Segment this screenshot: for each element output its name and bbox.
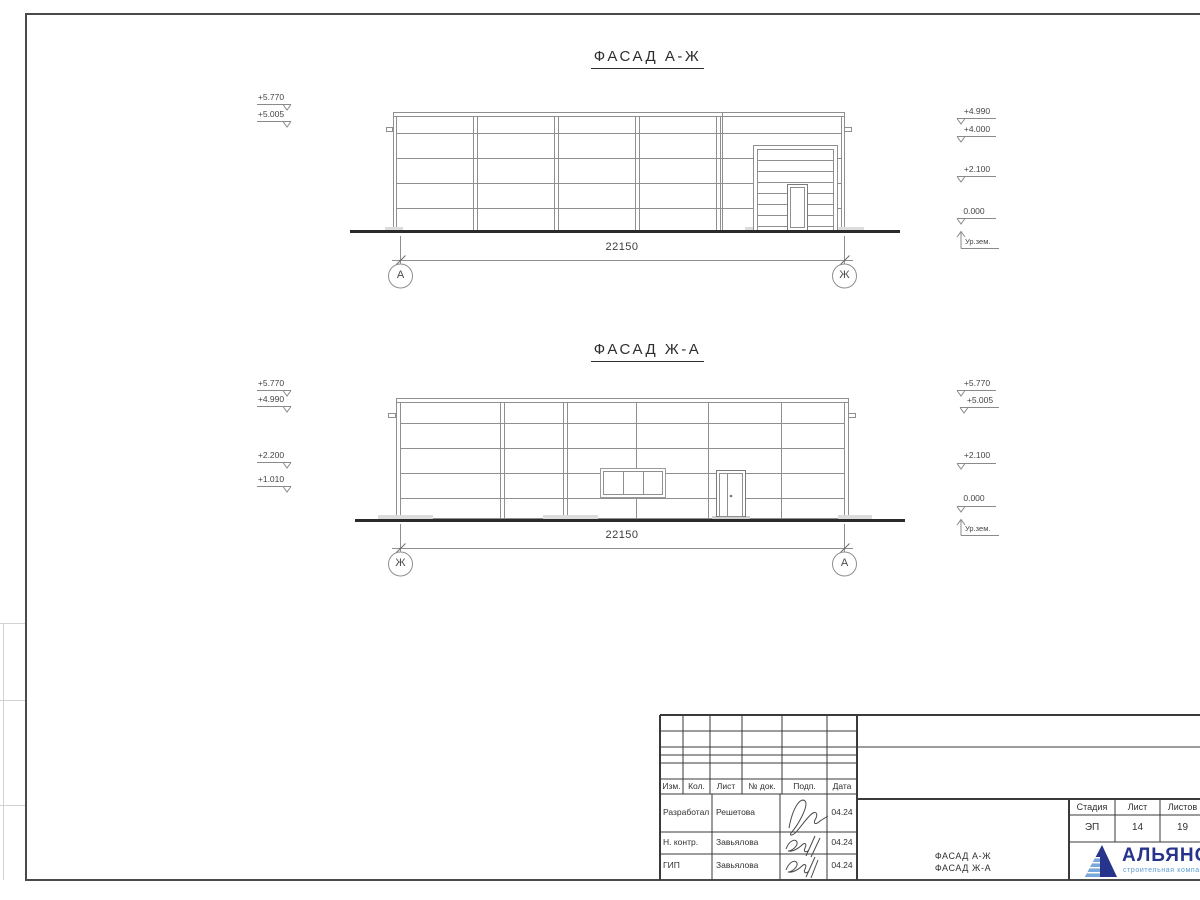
axis-letter: А xyxy=(832,557,857,570)
stage-value: ЭП xyxy=(1069,822,1115,834)
facade-2-title: ФАСАД Ж-А xyxy=(540,341,755,358)
elevation-label: 0.000 xyxy=(956,207,992,217)
sheet-header: Лист xyxy=(1115,802,1160,812)
titleblock-col-izm: Изм. xyxy=(660,782,683,792)
window xyxy=(601,469,666,498)
elevation-label: +2.100 xyxy=(958,451,996,461)
axis-letter: Ж xyxy=(388,557,413,570)
elevation-label: +4.990 xyxy=(253,395,289,405)
facade-1-title: ФАСАД А-Ж xyxy=(540,48,755,65)
role-label: ГИП xyxy=(663,861,680,871)
date-value: 04.24 xyxy=(827,861,857,871)
elevation-label: +4.990 xyxy=(958,107,996,117)
page-frame xyxy=(25,13,1200,881)
person-name: Завьялова xyxy=(716,838,758,848)
elevation-label: +2.200 xyxy=(253,451,289,461)
facade-2-drawing xyxy=(257,391,999,577)
sheet-linework xyxy=(0,0,1200,900)
sheets-header: Листов xyxy=(1160,802,1200,812)
titleblock-col-list: Лист xyxy=(710,782,742,792)
logo-pyramid-icon xyxy=(1084,845,1117,877)
titleblock-col-data: Дата xyxy=(827,782,857,792)
facade-1-drawing xyxy=(257,105,999,289)
titleblock-col-doc: № док. xyxy=(742,782,782,792)
dimension-value: 22150 xyxy=(582,529,662,542)
gate xyxy=(754,146,838,231)
elevation-label: +5.005 xyxy=(961,396,999,406)
titleblock-col-kol: Кол. xyxy=(683,782,710,792)
logo-company-name: АЛЬЯНС xyxy=(1122,845,1200,867)
drawing-name: ФАСАД А-Ж ФАСАД Ж-А xyxy=(857,850,1069,874)
date-value: 04.24 xyxy=(827,838,857,848)
ground-level-label: Ур.зем. xyxy=(965,525,990,534)
sheets-value: 19 xyxy=(1160,822,1200,834)
axis-letter: Ж xyxy=(832,269,857,282)
sheet-value: 14 xyxy=(1115,822,1160,834)
elevation-label: 0.000 xyxy=(956,494,992,504)
person-name: Решетова xyxy=(716,808,755,818)
elevation-label: +5.770 xyxy=(253,379,289,389)
person-name: Завьялова xyxy=(716,861,758,871)
elevation-marks-right xyxy=(957,119,999,249)
date-value: 04.24 xyxy=(827,808,857,818)
elevation-label: +5.770 xyxy=(958,379,996,389)
elevation-label: +2.100 xyxy=(958,165,996,175)
role-label: Н. контр. xyxy=(663,838,698,848)
stage-header: Стадия xyxy=(1069,802,1115,812)
role-label: Разработал xyxy=(663,808,709,818)
signature-scribbles xyxy=(786,800,828,878)
titleblock-col-podp: Подп. xyxy=(782,782,827,792)
drawing-sheet: { "sheet": { "facades": [ { "title": "ФА… xyxy=(0,0,1200,900)
elevation-label: +5.770 xyxy=(253,93,289,103)
dimension-value: 22150 xyxy=(582,241,662,254)
elevation-label: +5.005 xyxy=(253,110,289,120)
axis-letter: А xyxy=(388,269,413,282)
ground-level-label: Ур.зем. xyxy=(965,238,990,247)
elevation-label: +1.010 xyxy=(253,475,289,485)
binding-margin-marks xyxy=(0,623,25,880)
elevation-marks-right xyxy=(957,391,999,536)
logo-subtitle: строительная компания xyxy=(1123,867,1200,875)
entrance-door xyxy=(712,471,750,520)
elevation-label: +4.000 xyxy=(958,125,996,135)
